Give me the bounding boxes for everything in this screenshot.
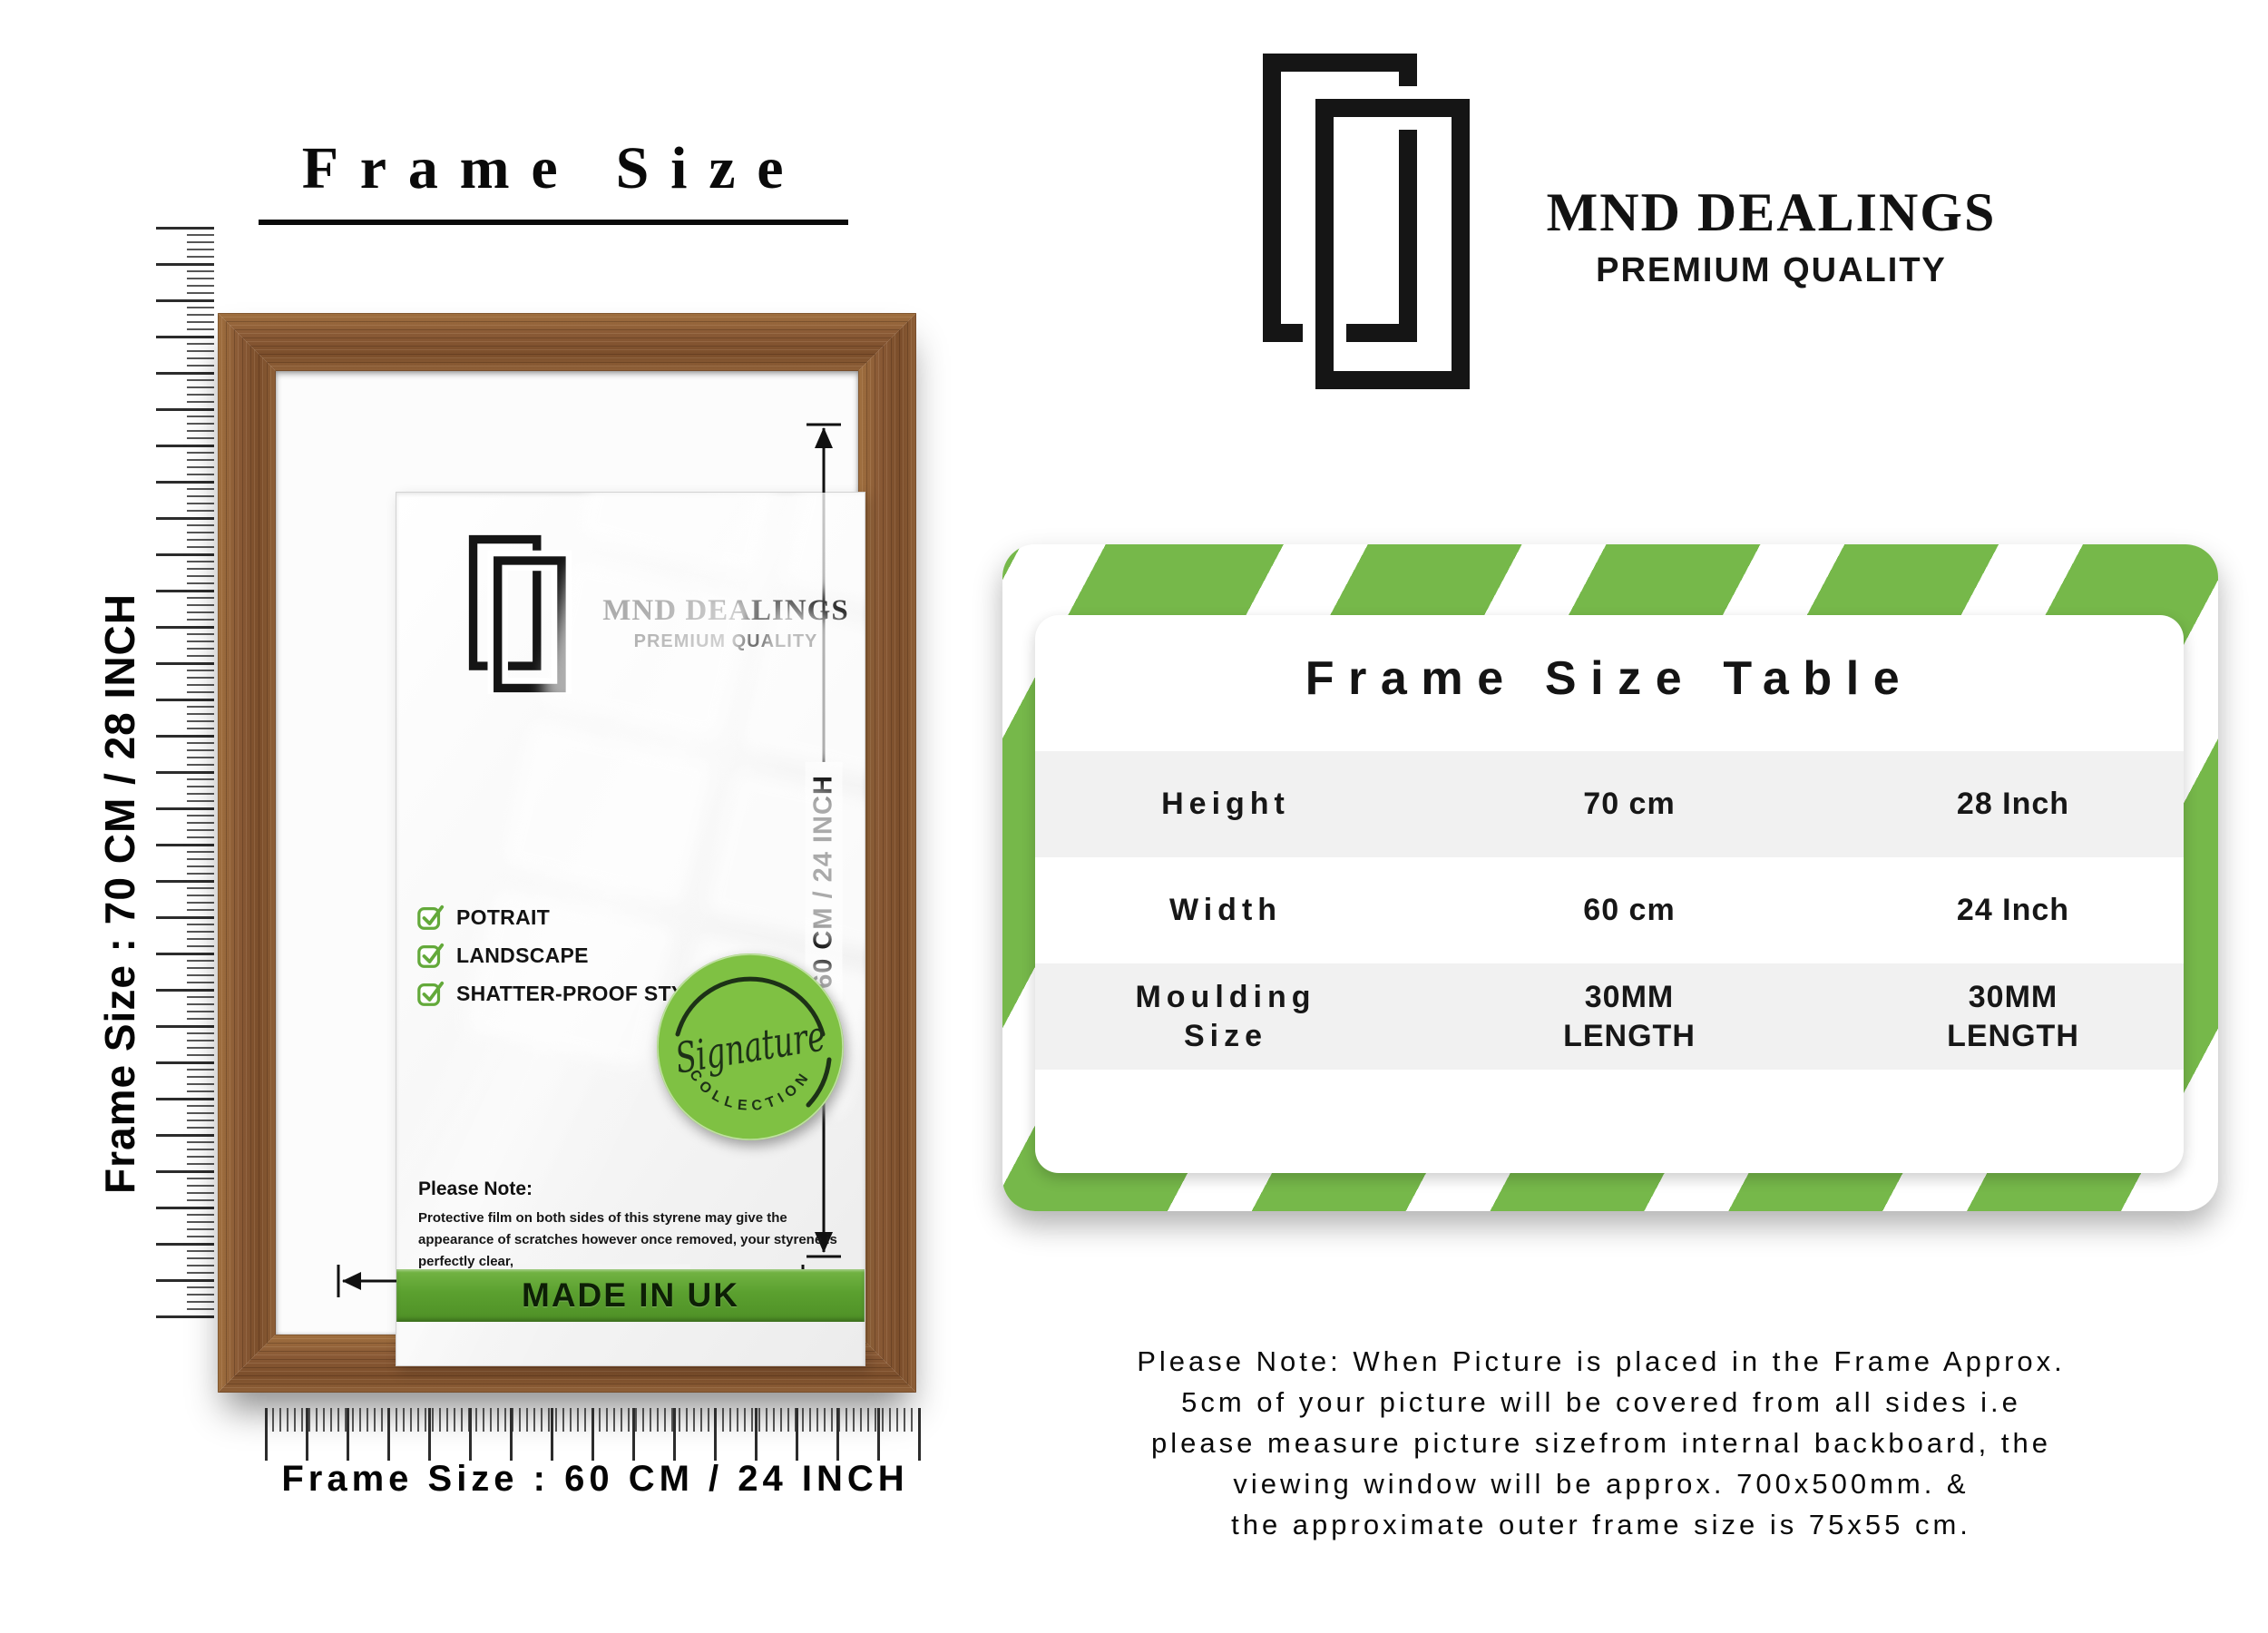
vertical-ruler: [156, 227, 214, 1320]
footnote-line: viewing window will be approx. 700x500mm…: [1012, 1463, 2191, 1504]
row-label: Width: [1035, 891, 1416, 930]
brand-tagline: PREMIUM QUALITY: [1492, 251, 2050, 290]
frame-wood-left: [218, 313, 276, 1393]
row-cm-value: 70 cm: [1416, 785, 1843, 824]
checklist-label: POTRAIT: [456, 905, 550, 930]
footnote-line: the approximate outer frame size is 75x5…: [1012, 1504, 2191, 1545]
frame-wood-right: [858, 313, 916, 1393]
size-table: Height 70 cm 28 Inch Width 60 cm 24 Inch…: [1035, 751, 2184, 1070]
footnote-line: Please Note: When Picture is placed in t…: [1012, 1341, 2191, 1382]
row-label: Height: [1035, 785, 1416, 824]
brand-frames-icon-large: [1259, 50, 1488, 393]
brand-lockup-small: MND DEALINGS PREMIUM QUALITY: [576, 594, 865, 652]
footnote-line: please measure picture sizefrom internal…: [1012, 1423, 2191, 1463]
left-ruler-label: Frame Size : 70 CM / 28 INCH: [95, 593, 144, 1194]
frame-size-panel: Frame Size Table Height 70 cm 28 Inch Wi…: [1035, 615, 2184, 1173]
horizontal-ruler: [265, 1408, 925, 1462]
made-in-uk-banner: MADE IN UK: [396, 1269, 865, 1322]
frame-mat: MND DEALINGS PREMIUM QUALITY POTRAIT: [276, 371, 858, 1335]
checkbox-check-icon: [416, 941, 445, 970]
row-label: Moulding Size: [1035, 978, 1416, 1055]
frame-size-card: Frame Size Table Height 70 cm 28 Inch Wi…: [1002, 544, 2218, 1211]
signature-collection-badge: Signature COLLECTION: [654, 951, 846, 1143]
checkbox-check-icon: [416, 903, 445, 932]
table-row: Width 60 cm 24 Inch: [1035, 857, 2184, 963]
page-title: Frame Size: [259, 134, 848, 225]
row-inch-value: 24 Inch: [1843, 891, 2184, 930]
brand-name: MND DEALINGS: [1492, 181, 2050, 244]
checklist-label: LANDSCAPE: [456, 944, 589, 968]
note-title: Please Note:: [418, 1178, 854, 1200]
footnote-line: 5cm of your picture will be covered from…: [1012, 1382, 2191, 1423]
brand-lockup-large: MND DEALINGS PREMIUM QUALITY: [1492, 181, 2050, 290]
brand-tagline: PREMIUM QUALITY: [576, 631, 865, 652]
table-row: Moulding Size 30MM LENGTH 30MM LENGTH: [1035, 963, 2184, 1070]
checklist-item: POTRAIT: [416, 903, 745, 932]
row-inch-value: 30MM LENGTH: [1843, 978, 2184, 1055]
note-body: Protective film on both sides of this st…: [418, 1208, 845, 1273]
row-inch-value: 28 Inch: [1843, 785, 2184, 824]
frame-wood-top: [218, 313, 916, 371]
row-cm-value: 30MM LENGTH: [1416, 978, 1843, 1055]
checkbox-check-icon: [416, 979, 445, 1008]
table-title: Frame Size Table: [1035, 651, 2184, 706]
footnote: Please Note: When Picture is placed in t…: [1012, 1341, 2191, 1545]
brand-name: MND DEALINGS: [576, 594, 865, 628]
made-in-uk-text: MADE IN UK: [522, 1276, 739, 1315]
row-cm-value: 60 cm: [1416, 891, 1843, 930]
styrene-note: Please Note: Protective film on both sid…: [418, 1178, 854, 1273]
frame-insert-sheet: MND DEALINGS PREMIUM QUALITY POTRAIT: [396, 492, 865, 1366]
table-row: Height 70 cm 28 Inch: [1035, 751, 2184, 857]
brand-frames-icon: [467, 533, 574, 694]
bottom-ruler-label: Frame Size : 60 CM / 24 INCH: [265, 1459, 925, 1500]
